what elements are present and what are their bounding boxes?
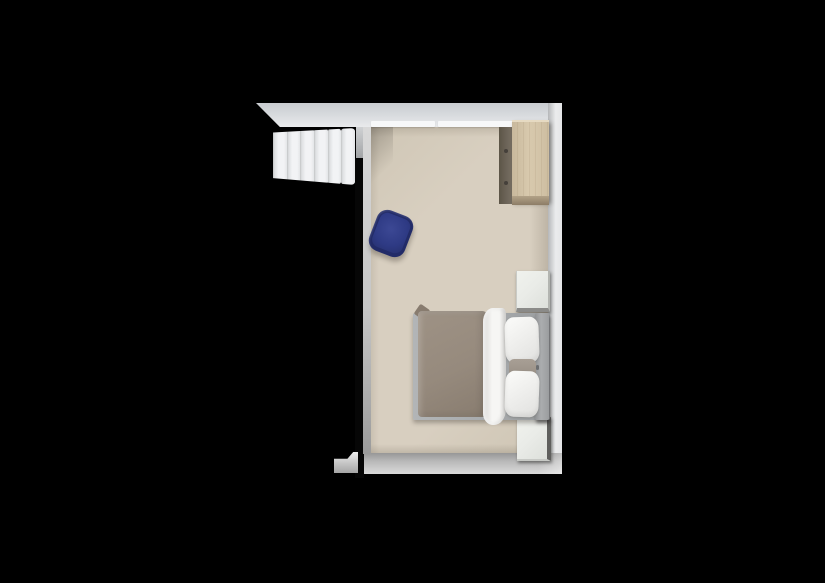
baseboard-segment: [371, 121, 435, 127]
headboard-tuft: [536, 365, 539, 370]
stair-step: [314, 128, 328, 185]
staircase[interactable]: [273, 128, 355, 185]
wardrobe-top-face: [512, 120, 549, 201]
wardrobe-side-panel: [499, 127, 513, 204]
wall-left-inner-face: [363, 127, 371, 454]
stair-step: [300, 128, 314, 185]
ottoman-body: [366, 207, 417, 261]
stair-step: [287, 128, 301, 185]
stair-step: [328, 128, 342, 185]
ottoman[interactable]: [369, 210, 415, 259]
bed-sheet: [483, 308, 506, 425]
pillow-top: [504, 316, 540, 363]
stair-step: [341, 128, 355, 185]
ottoman-seat: [370, 210, 413, 255]
wardrobe-handle: [504, 149, 508, 153]
wardrobe-bottom-edge: [512, 196, 549, 205]
stair-step: [273, 128, 287, 185]
wardrobe-handle: [504, 181, 508, 185]
floorplan-render-canvas: [0, 0, 825, 583]
exterior-wall-stub: [334, 452, 358, 473]
pillow-bottom: [504, 370, 540, 417]
wardrobe[interactable]: [499, 119, 549, 205]
double-bed[interactable]: [413, 305, 550, 425]
duvet: [418, 311, 488, 417]
